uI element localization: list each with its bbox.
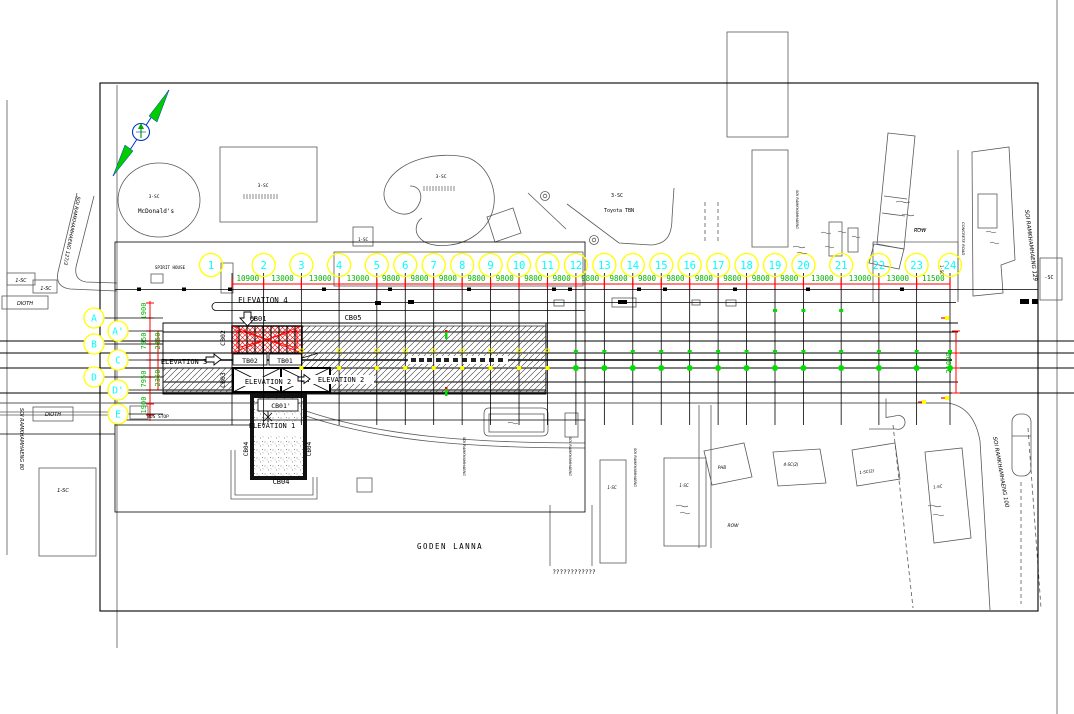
black-bar-mark [1020,299,1029,304]
dim-spacing-13: 9800 [610,274,629,283]
label-parcel-phb: PHB [718,465,726,470]
label-mcdonalds: McDonald's [138,208,175,215]
micro-text-mark [508,422,518,424]
green-marker-lower [772,365,778,371]
yellow-marker-lower [337,366,341,370]
dim-spacing-3: 13000 [309,274,332,283]
label-row-right: ROW [914,228,927,234]
label-elevation-3: ELEVATION 3 [161,358,207,366]
grid-number-11: 11 [541,260,554,272]
grid-number-12: 12 [570,260,583,272]
parcel-mid-1 [600,460,626,563]
green-marker-lower [658,365,664,371]
elevation4-strip [212,303,956,311]
dim-spacing-19: 9800 [780,274,799,283]
shaft-stipple-bottom [254,436,303,476]
dim-spacing-14: 9800 [638,274,657,283]
green-marker-upper [631,350,635,353]
label-tb02: TB02 [242,357,258,365]
label-spirit-house: SPIRIT HOUSE [155,265,186,270]
green-marker-strip [773,309,777,312]
dim-spacing-5: 9800 [382,274,401,283]
row-letter-E: E [115,409,121,420]
fence-post [663,288,667,292]
label-parcel-1sc-mid1: 1-SC [607,485,617,490]
label-thai-text: ???????????? [552,569,596,576]
grid-number-22: 22 [873,260,886,272]
green-marker-lower [838,365,844,371]
grid-number-20: 20 [797,260,810,272]
label-cb04-left: CB04 [243,441,250,456]
utility-box-1 [829,222,842,256]
green-marker-upper [574,350,578,353]
building-tr-1 [727,32,788,137]
row-letter-A: A [91,313,97,324]
dim-spacing-2: 13000 [271,274,294,283]
grid-number-23: 23 [910,260,923,272]
label-dioth-1: DIOTH [17,301,33,307]
parcel-block-nw [220,147,317,222]
label-parcel-3sc-c: 3-SC [611,193,623,199]
road-concrete-road: CONCRETE ROAD [961,222,966,255]
green-marker-lower [947,365,953,371]
fence-post [637,288,641,292]
fence-post [900,288,904,292]
green-marker-lower [630,365,636,371]
micro-text-mark [821,232,831,234]
red-tip-marker [445,387,448,389]
yellow-survey-marker [945,316,949,320]
green-marker-lower [744,365,750,371]
fence-post [322,288,326,292]
row-letter-D: D [91,372,97,383]
grid-number-9: 9 [487,260,493,272]
green-marker-upper [877,350,881,353]
tilted-tower-floors [882,196,907,216]
grid-number-16: 16 [683,260,696,272]
label-row-bottom: ROW [727,523,739,529]
grid-number-18: 18 [740,260,753,272]
grid-number-21: 21 [835,260,848,272]
label-parcel-1sc-left3: 1-SC [57,488,69,494]
north-arrow-head-n [149,90,169,122]
right-bldg-rounded [1012,414,1031,476]
vdim-text-5: 1900 [140,397,148,414]
row-letter-A': A' [112,326,123,337]
green-marker-lower [573,365,579,371]
grid-number-17: 17 [712,260,725,272]
grid-number-24: 24 [944,260,957,272]
vdim-text-0: 1900 [140,303,148,320]
grid-number-4: 4 [336,260,342,272]
label-cb04-right: CB04 [306,441,313,456]
label-parcel-1sc-mid2: 1-SC [679,483,689,488]
green-marker-lower [687,365,693,371]
green-marker-strip [839,309,843,312]
micro-text-mark [990,242,999,244]
green-marker-upper [659,350,663,353]
micro-text-mark [933,514,944,516]
label-parcel-1sc-vert: 1-SC [939,265,944,275]
tilted-tower-building [877,133,915,249]
label-cb01-prime: CB01' [271,402,291,410]
dim-spacing-12: 9800 [581,274,600,283]
yellow-marker-lower [489,366,493,370]
kiosk-mark [618,300,627,304]
grid-number-14: 14 [626,260,639,272]
small-bldg-1 [357,478,372,492]
yellow-survey-marker [922,400,926,404]
label-parcel-1sc-br: 1-SC [933,483,943,489]
parcel-1sc2-br [852,443,900,486]
row-letter-B: B [91,339,97,350]
grid-number-5: 5 [374,260,380,272]
row-letter-C: C [115,355,121,366]
grid-number-19: 19 [769,260,782,272]
label-parcel-1sc-left2: 1-SC [40,286,52,292]
green-marker-upper [773,350,777,353]
dim-spacing-17: 9800 [723,274,742,283]
label-parcel-1sc-top: 1-SC [358,237,369,242]
green-marker-upper [688,350,692,353]
label-elevation-1: ELEVATION 1 [249,422,295,430]
strip-mark [408,300,414,304]
dim-spacing-7: 9800 [439,274,458,283]
green-marker-lower [914,365,920,371]
fence-post [182,288,186,292]
road-soi-topright: SOI RAMKHAMHAENG [795,190,799,229]
manhole-2-inner [592,238,596,242]
strip-kiosk-1 [554,300,564,306]
road-soi-ramkhamhaeng-80: SOI RAMKHAMHAENG 80 [18,408,24,470]
dim-spacing-10: 9800 [524,274,543,283]
micro-text-mark [793,246,805,248]
parcel-4sc2 [773,449,826,486]
label-elevation-2b: ELEVATION 2 [318,376,364,384]
road-soi-mid-c: SOI RAMKHAMHAENG [633,448,637,487]
dim-spacing-16: 9800 [695,274,714,283]
grid-number-7: 7 [431,260,437,272]
row-letter-D': D' [112,385,123,396]
label-cb02: CB02 [219,330,227,346]
building-right [972,147,1015,296]
soi100-dashed-east [1028,428,1041,608]
red-tip-marker [445,330,448,332]
green-marker-lower [876,365,882,371]
label-tb01: TB01 [277,357,293,365]
parcel-bl [39,468,96,556]
grid-number-10: 10 [513,260,526,272]
tree-tick-row [424,186,454,191]
label-bus-stop: BUS STOP [147,414,169,420]
cad-canvas: GODEN LANNA 1234567891011121314151617181… [0,0,1074,714]
green-marker-upper [915,350,919,353]
yellow-marker-lower [403,366,407,370]
fence-post [228,288,232,292]
road-soi-ramkhamhaeng-129: SOI RAMKHAMHAENG 129 [1023,210,1038,282]
soi100-curb [948,403,990,610]
label-dioth-2: DIOTH [45,412,61,418]
green-marker-upper [801,350,805,353]
green-marker-lower [601,365,607,371]
label-elevation-4: ELEVATION 4 [238,296,288,305]
station-east-building [873,242,958,302]
north-arrow-head-s [113,145,133,176]
parcel-1sc-br [925,448,971,543]
road-soi-mid-b: SOI RAMKHAMHAENG [568,437,572,476]
road-soi-mid-a: SOI RAMKHAMHAENG [462,437,466,476]
diagonal-drive [528,193,566,229]
tree-tick-row [244,194,277,199]
yellow-survey-marker [945,396,949,400]
label-parcel-3sc-mcd: 3-SC [149,194,160,200]
elevation3-arrow-icon [206,354,221,365]
label-cb05: CB05 [345,314,362,322]
label-cb04-bottom: CB04 [273,478,290,486]
yellow-marker-lower [299,366,303,370]
green-bar-marker [445,332,448,339]
green-marker-upper [745,350,749,353]
manhole-2 [590,236,599,245]
label-elevation-2a: ELEVATION 2 [245,378,291,386]
dim-spacing-21: 13000 [849,274,872,283]
dim-spacing-9: 9800 [496,274,515,283]
micro-text-mark [680,512,690,514]
dim-spacing-18: 9800 [752,274,771,283]
label-parcel-3sc-a: 3-SC [258,183,269,189]
manhole-1 [541,192,550,201]
building-tr-2 [752,150,788,247]
fence-post [733,288,737,292]
fence-post [806,288,810,292]
label-goden-lanna: GODEN LANNA [417,542,483,551]
green-marker-lower [800,365,806,371]
green-marker-lower [715,365,721,371]
vdim-text-4: 7950 [140,371,148,388]
micro-text-mark [986,231,996,233]
label-parcel-sc-right: -SC [1044,275,1053,281]
mid-bldg-inner [489,414,544,432]
green-marker-upper [948,350,952,353]
dim-spacing-4: 13000 [347,274,370,283]
dim-spacing-8: 9800 [467,274,486,283]
walkway-double [306,411,585,448]
green-marker-strip [801,309,805,312]
parcel-mid-2 [664,458,706,546]
vdim-right [952,331,960,393]
toyota-dashed-lines [705,202,718,242]
yellow-marker-lower [460,366,464,370]
mcdonalds-parcel [118,163,200,237]
green-bar-marker [445,389,448,396]
vdim-text-3: 2350 [154,370,162,387]
pond-outline [384,155,494,245]
label-toyota-tbn: Toyota TBN [604,208,634,214]
label-parcel-4sc2: 4-SC(2) [784,462,799,467]
yellow-marker-lower [375,366,379,370]
label-parcel-1sc2: 1-SC(2) [859,468,875,475]
label-parcel-1sc-left1: 1-SC [15,278,27,284]
manhole-1-inner [543,194,547,198]
dim-spacing-23: 11500 [922,274,945,283]
building-right-court [978,194,997,228]
strip-kiosk-4 [726,300,736,306]
yellow-marker-lower [545,366,549,370]
yellow-marker-lower [432,366,436,370]
road-soi-ramkhamhaeng-127: SOI RAMKHAMHAENG 127/3 [62,196,81,266]
grid-number-8: 8 [459,260,465,272]
label-parcel-3sc-b: 3-SC [436,174,447,180]
label-cb01: CB01 [250,315,267,323]
green-marker-upper [839,350,843,353]
dim-spacing-20: 13000 [811,274,834,283]
fence-post [568,288,572,292]
fence-post [467,288,471,292]
dim-spacing-6: 9800 [410,274,429,283]
dim-spacing-1: 10900 [237,274,260,283]
micro-text-mark [896,201,910,203]
micro-text-mark [852,236,860,238]
strip-mark [375,301,381,305]
vdim-text-1: 7950 [140,333,148,350]
grid-number-1: 1 [208,260,214,272]
yellow-marker-lower [517,366,521,370]
fence-post [552,288,556,292]
cad-drawing-page: GODEN LANNA 1234567891011121314151617181… [0,0,1074,714]
dim-spacing-15: 9800 [666,274,685,283]
green-marker-upper [716,350,720,353]
spirit-house-marker [151,274,163,283]
micro-text-mark [825,246,834,248]
road-soi-ramkhamhaeng-100: SOI RAMKHAMHAENG 100 [991,436,1009,508]
micro-text-mark [676,505,688,507]
vdim-text-2: 2350 [154,333,162,350]
dim-spacing-11: 9800 [553,274,572,283]
fence-post [137,288,141,292]
dim-spacing-22: 13000 [886,274,909,283]
black-bar-mark [1032,299,1038,304]
green-marker-upper [602,350,606,353]
label-cb03: CB03 [219,372,227,388]
grid-number-15: 15 [655,260,668,272]
fence-post [388,288,392,292]
grid-number-6: 6 [402,260,408,272]
grid-number-13: 13 [598,260,611,272]
grid-number-2: 2 [260,260,266,272]
grid-number-3: 3 [298,260,304,272]
utility-box-2 [848,228,858,252]
